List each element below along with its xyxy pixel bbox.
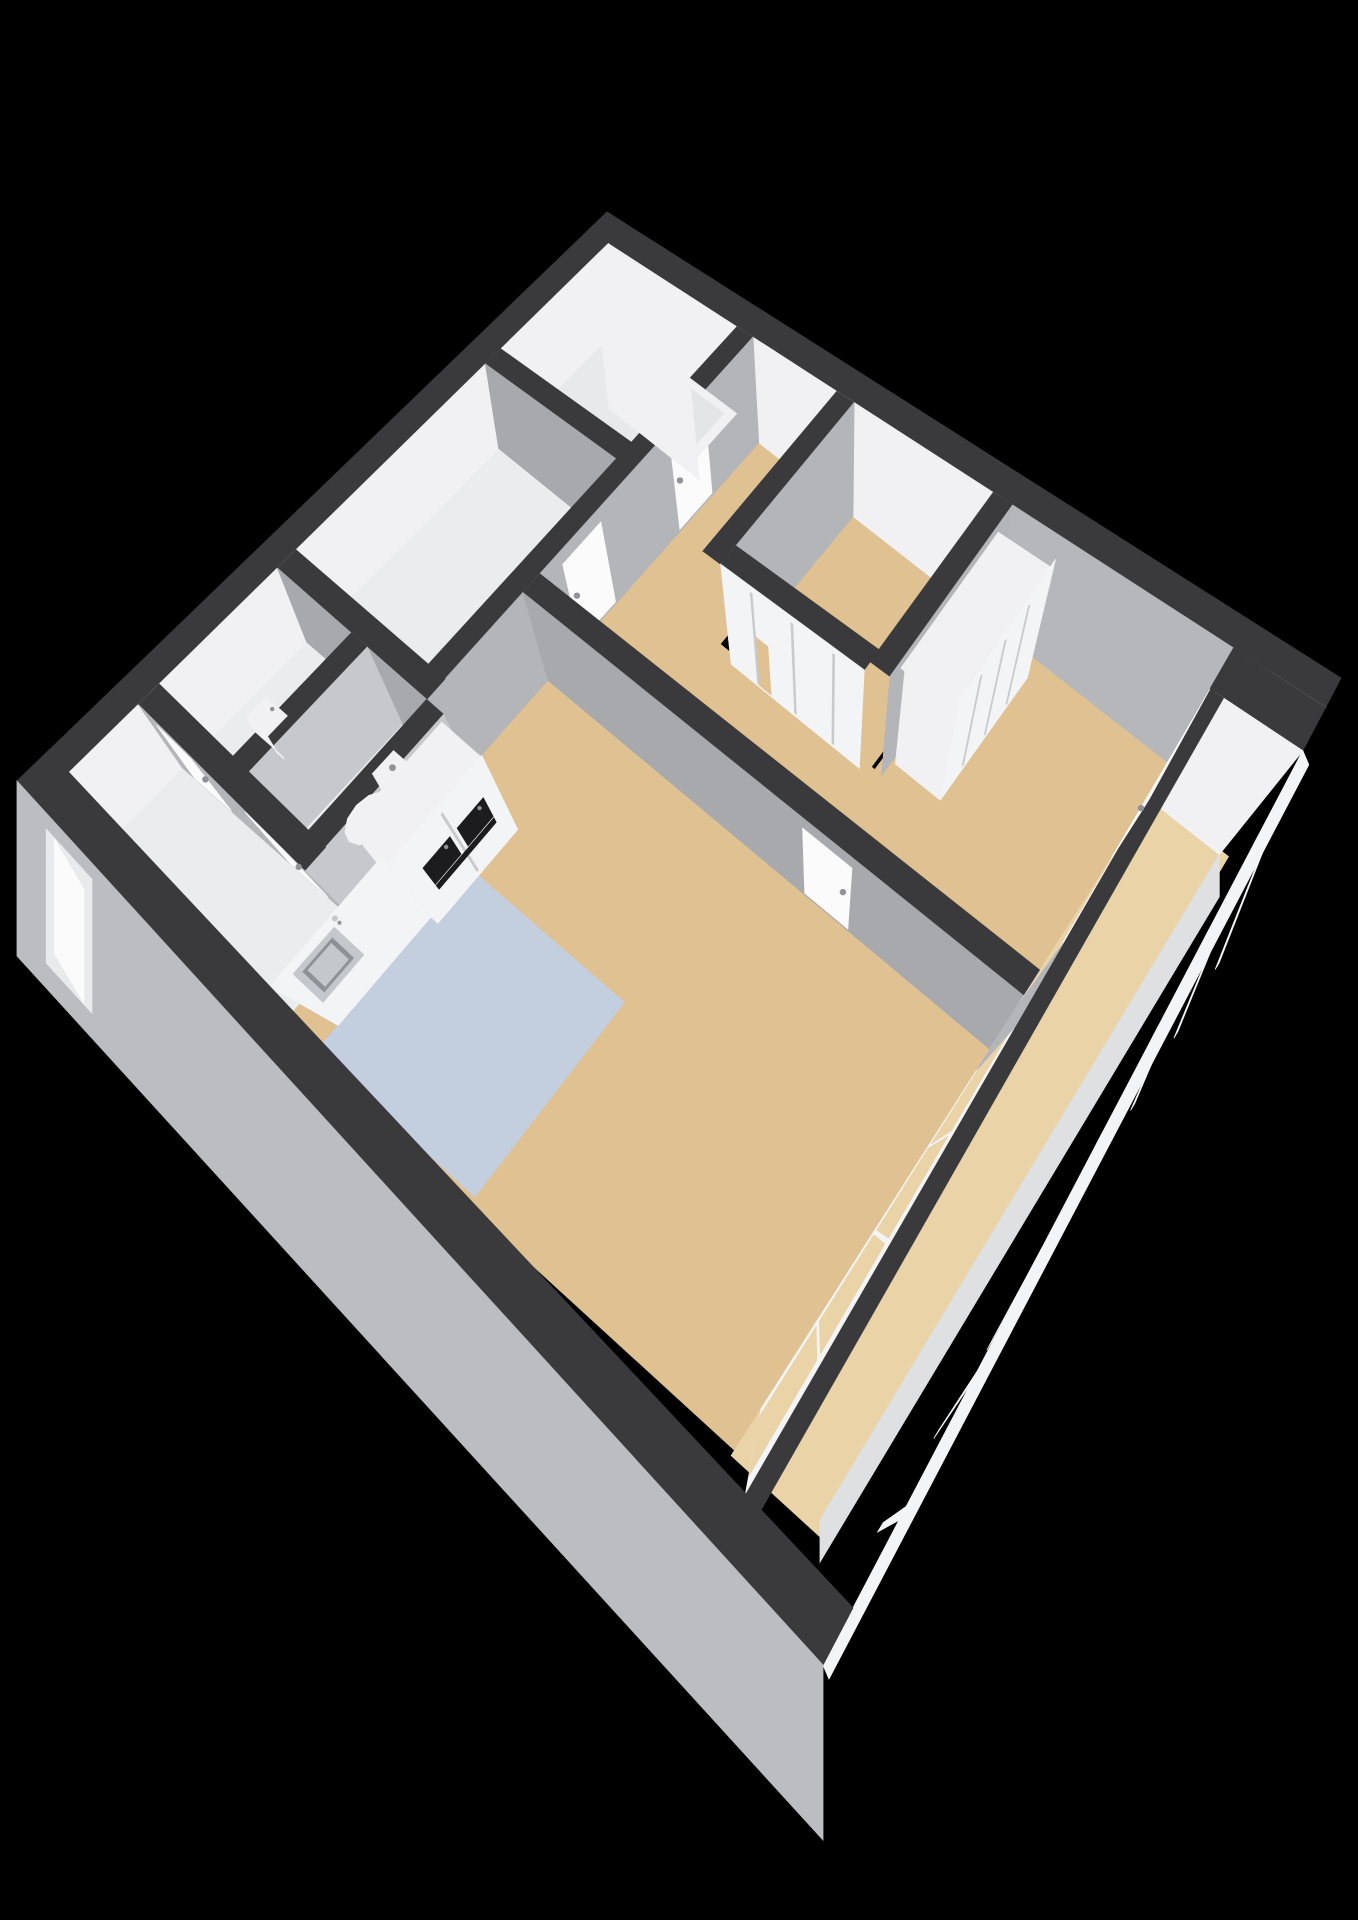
floorplan-3d-render <box>0 0 1358 1920</box>
floorplan-svg <box>0 0 1358 1920</box>
